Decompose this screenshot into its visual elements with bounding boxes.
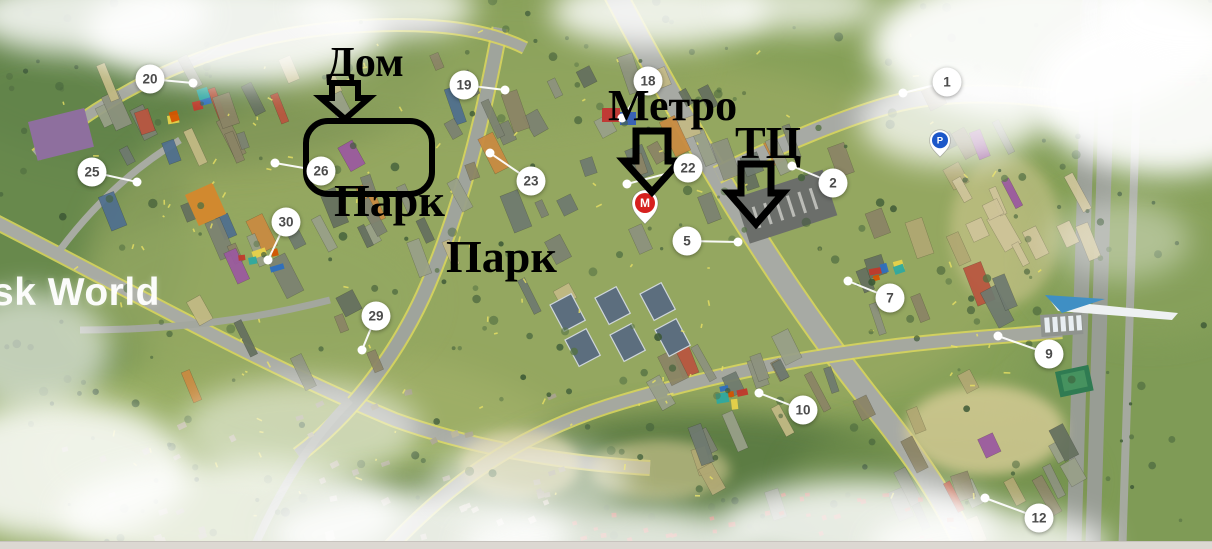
map-marker-7[interactable]: 7 <box>876 284 905 313</box>
map-marker-26[interactable]: 26 <box>307 157 336 186</box>
map-marker-30[interactable]: 30 <box>272 208 301 237</box>
map-marker-25[interactable]: 25 <box>78 158 107 187</box>
annotation-tc: ТЦ <box>735 120 801 166</box>
map-marker-20[interactable]: 20 <box>136 65 165 94</box>
map-marker-1[interactable]: 1 <box>933 68 962 97</box>
horizontal-scrollbar[interactable] <box>0 541 1212 549</box>
map-marker-5[interactable]: 5 <box>673 227 702 256</box>
map-marker-29[interactable]: 29 <box>362 302 391 331</box>
map-marker-10[interactable]: 10 <box>789 396 818 425</box>
annotation-park-1: Парк <box>334 178 445 224</box>
map-marker-2[interactable]: 2 <box>819 169 848 198</box>
map-render <box>0 0 1212 549</box>
annotation-metro: Метро <box>608 84 737 128</box>
annotation-park-2: Парк <box>446 234 557 280</box>
map-marker-22[interactable]: 22 <box>674 154 703 183</box>
map-marker-23[interactable]: 23 <box>517 167 546 196</box>
map-marker-12[interactable]: 12 <box>1025 504 1054 533</box>
masterplan-map: МP sk World 202526302919231822521791012 … <box>0 0 1212 549</box>
map-marker-9[interactable]: 9 <box>1035 340 1064 369</box>
map-marker-19[interactable]: 19 <box>450 71 479 100</box>
watermark: sk World <box>0 271 160 315</box>
annotation-dom: Дом <box>326 42 404 84</box>
